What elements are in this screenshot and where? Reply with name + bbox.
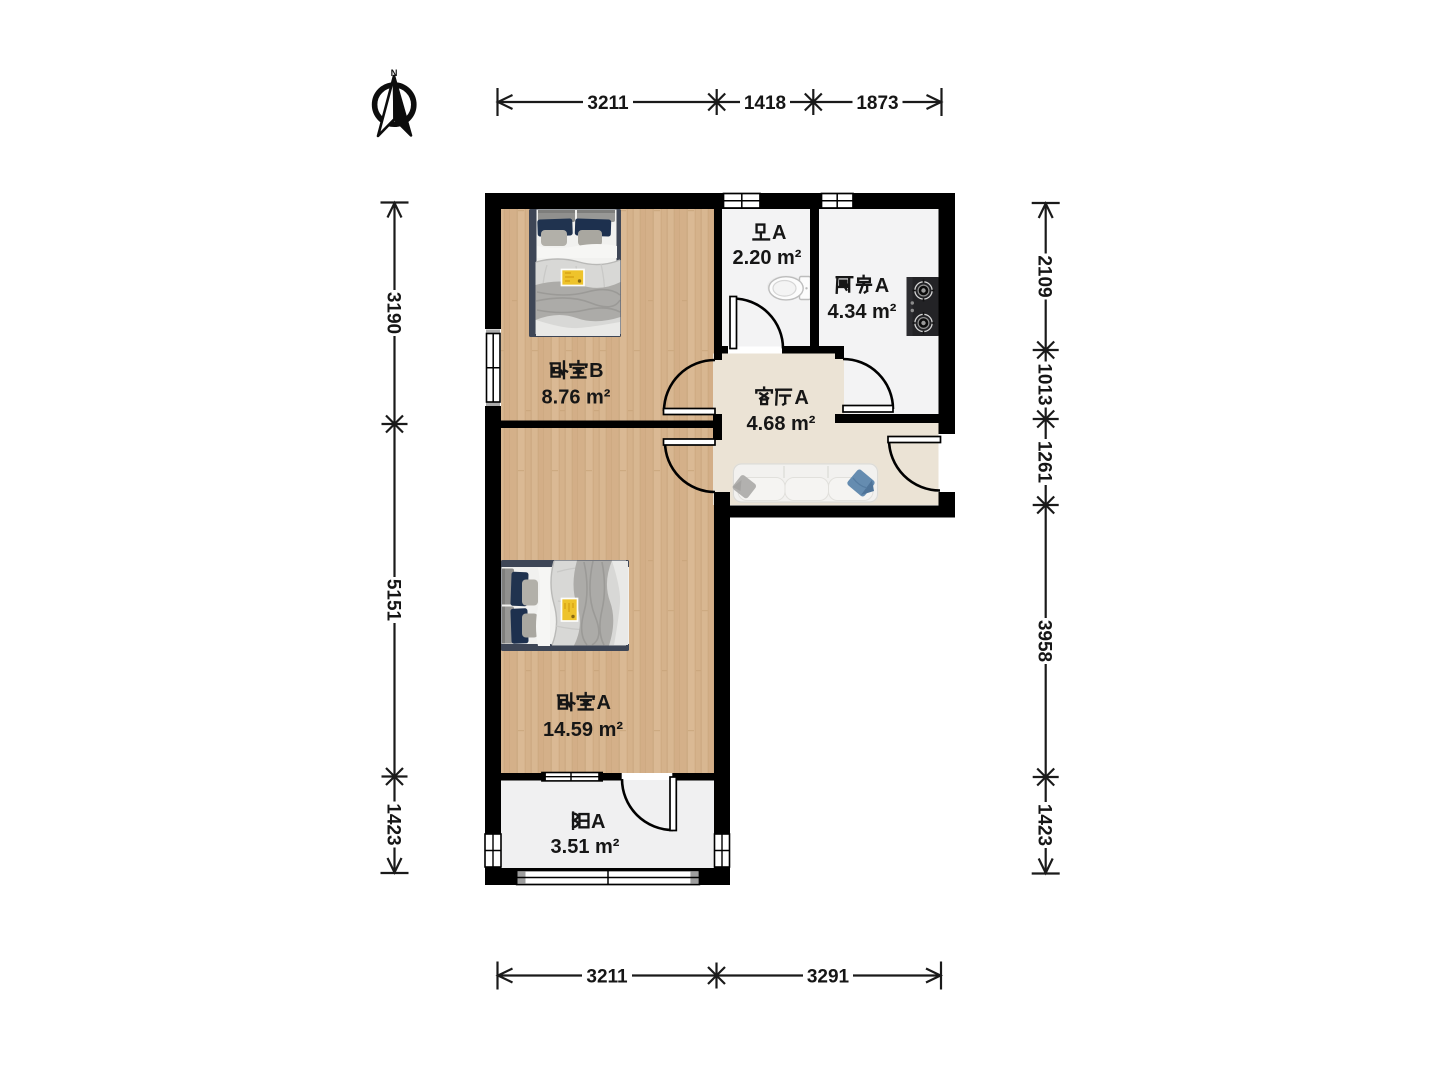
svg-text:3211: 3211 — [587, 93, 629, 114]
svg-text:1418: 1418 — [744, 93, 786, 114]
svg-text:1261: 1261 — [1034, 441, 1055, 484]
svg-text:1873: 1873 — [856, 93, 898, 114]
svg-text:1013: 1013 — [1034, 363, 1055, 405]
svg-text:4.34 m²: 4.34 m² — [828, 301, 897, 323]
svg-text:14.59 m²: 14.59 m² — [543, 719, 623, 741]
svg-text:1423: 1423 — [1034, 804, 1055, 846]
svg-text:A: A — [875, 275, 889, 297]
svg-text:A: A — [596, 692, 610, 714]
svg-text:3211: 3211 — [586, 967, 628, 988]
svg-text:A: A — [591, 811, 605, 833]
svg-text:3958: 3958 — [1034, 620, 1055, 662]
svg-text:1423: 1423 — [383, 803, 404, 845]
svg-text:B: B — [589, 360, 603, 382]
svg-text:3.51 m²: 3.51 m² — [551, 836, 620, 858]
svg-text:5151: 5151 — [383, 579, 404, 622]
svg-text:3190: 3190 — [383, 292, 404, 334]
svg-text:A: A — [772, 222, 786, 244]
svg-text:4.68 m²: 4.68 m² — [747, 413, 816, 435]
svg-text:2.20 m²: 2.20 m² — [733, 247, 802, 269]
svg-text:A: A — [794, 387, 808, 409]
svg-text:2109: 2109 — [1034, 255, 1055, 297]
svg-text:8.76 m²: 8.76 m² — [542, 387, 611, 409]
svg-text:3291: 3291 — [807, 967, 850, 988]
